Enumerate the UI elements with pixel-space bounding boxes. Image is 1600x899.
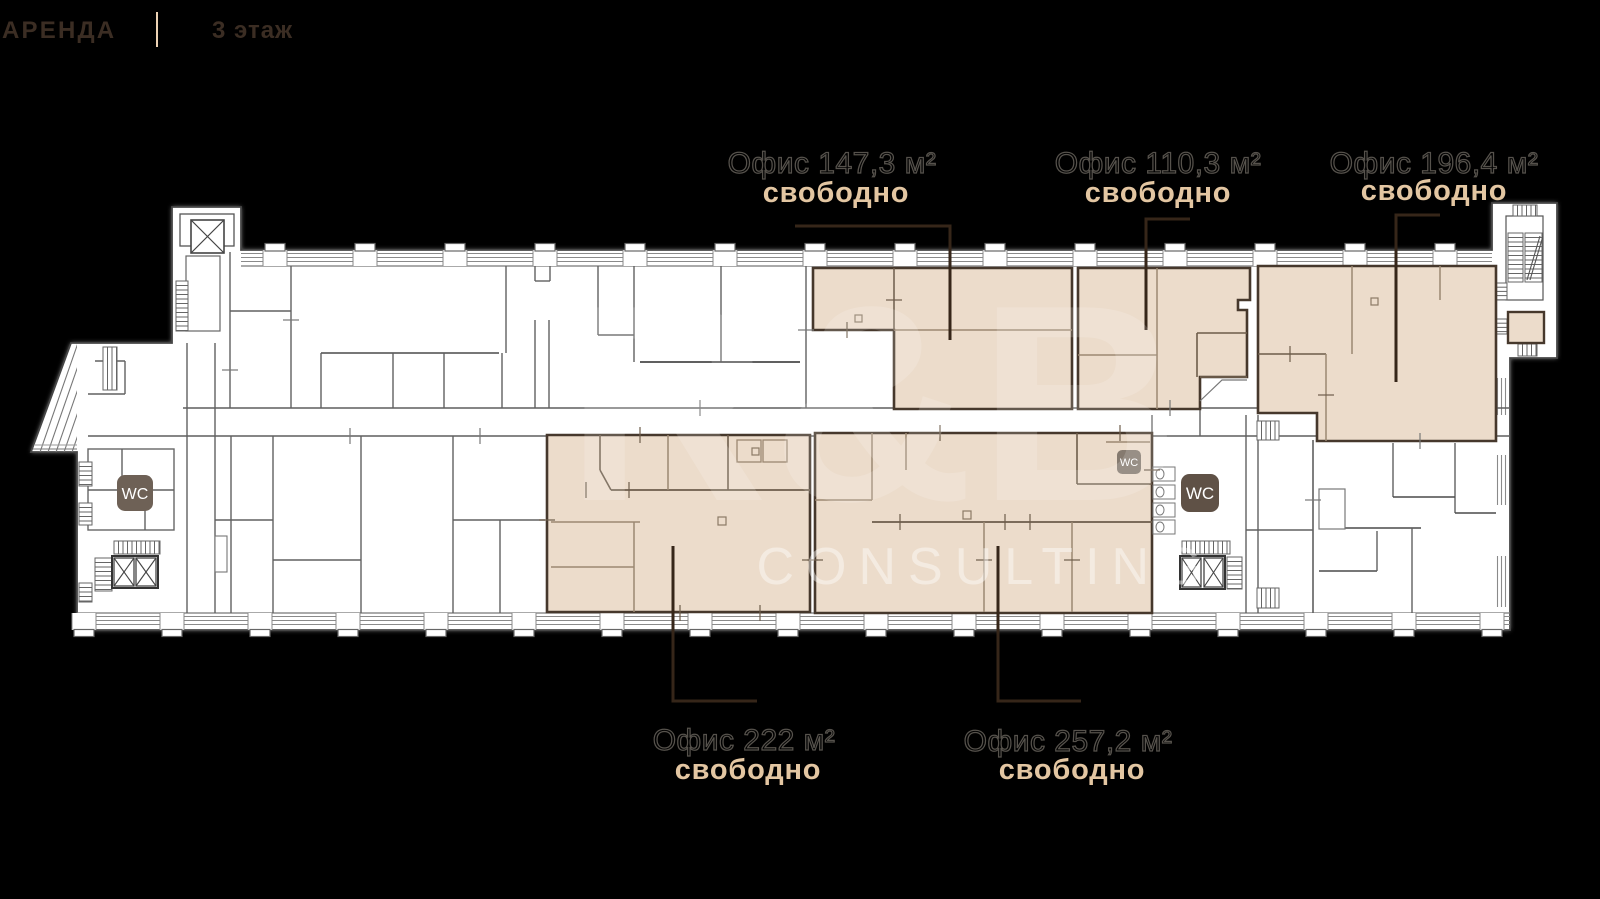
svg-text:WC: WC — [1186, 484, 1214, 503]
svg-text:R&B: R&B — [566, 248, 1185, 560]
svg-text:свободно: свободно — [1361, 175, 1508, 207]
svg-text:Офис 110,3 м²: Офис 110,3 м² — [1055, 147, 1261, 180]
svg-text:CONSULTING: CONSULTING — [756, 538, 1213, 596]
svg-text:свободно: свободно — [763, 177, 910, 209]
svg-text:3 этаж: 3 этаж — [212, 17, 293, 44]
svg-text:свободно: свободно — [1085, 177, 1232, 209]
svg-text:свободно: свободно — [999, 754, 1146, 786]
svg-text:Офис 222 м²: Офис 222 м² — [653, 724, 836, 757]
svg-text:Офис 147,3 м²: Офис 147,3 м² — [728, 147, 937, 180]
svg-text:WC: WC — [122, 486, 149, 503]
svg-text:АРЕНДА: АРЕНДА — [2, 17, 116, 44]
svg-text:свободно: свободно — [675, 754, 822, 786]
